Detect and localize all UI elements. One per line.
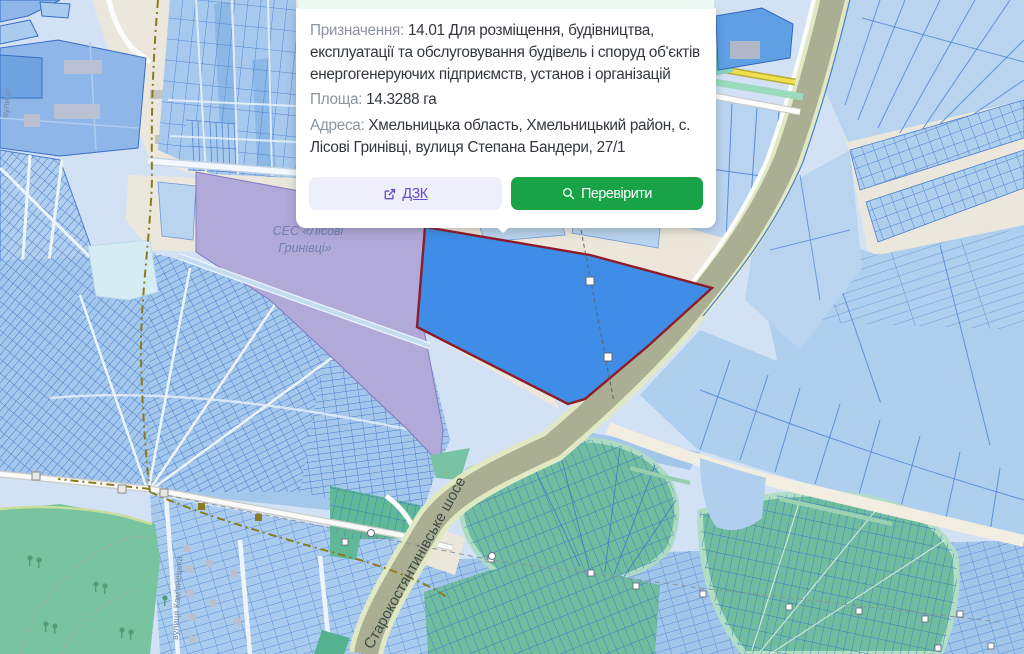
svg-text:Гринівці»: Гринівці»: [278, 241, 331, 255]
